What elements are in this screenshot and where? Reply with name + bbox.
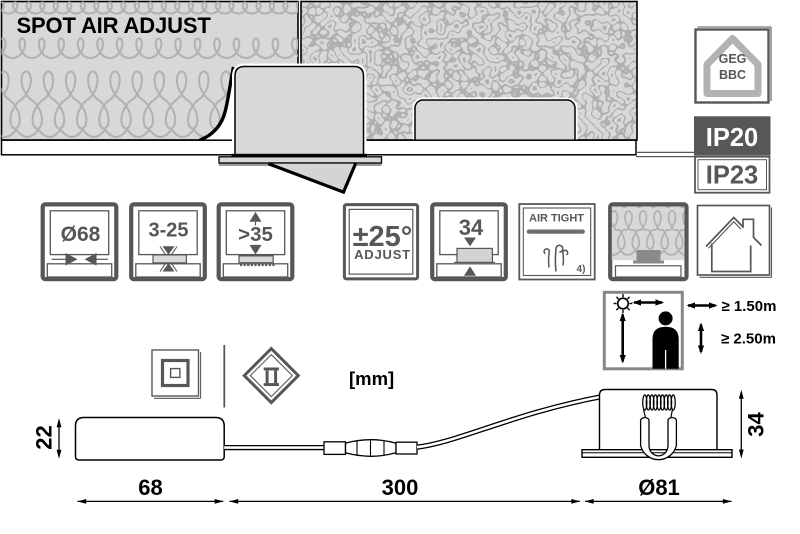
svg-text:IP23: IP23	[706, 162, 758, 190]
svg-text:BBC: BBC	[719, 68, 746, 82]
svg-text:≥ 1.50m: ≥ 1.50m	[722, 298, 777, 315]
svg-text:≥ 2.50m: ≥ 2.50m	[721, 331, 776, 348]
svg-text:4): 4)	[577, 264, 586, 275]
svg-text:300: 300	[382, 475, 419, 500]
svg-text:SPOT AIR ADJUST: SPOT AIR ADJUST	[17, 13, 212, 38]
svg-text:3-25: 3-25	[148, 220, 188, 242]
svg-text:[mm]: [mm]	[349, 368, 394, 389]
svg-text:22: 22	[32, 425, 57, 449]
svg-text:>35: >35	[238, 223, 273, 246]
svg-text:IP20: IP20	[706, 124, 758, 152]
svg-text:68: 68	[138, 475, 162, 500]
svg-text:Ø81: Ø81	[638, 475, 680, 500]
svg-text:34: 34	[459, 215, 484, 240]
svg-text:AIR TIGHT: AIR TIGHT	[529, 213, 584, 225]
svg-text:GEG: GEG	[719, 52, 747, 66]
svg-text:Ø68: Ø68	[61, 223, 101, 246]
svg-text:ADJUST: ADJUST	[354, 247, 411, 262]
svg-text:34: 34	[744, 412, 769, 437]
